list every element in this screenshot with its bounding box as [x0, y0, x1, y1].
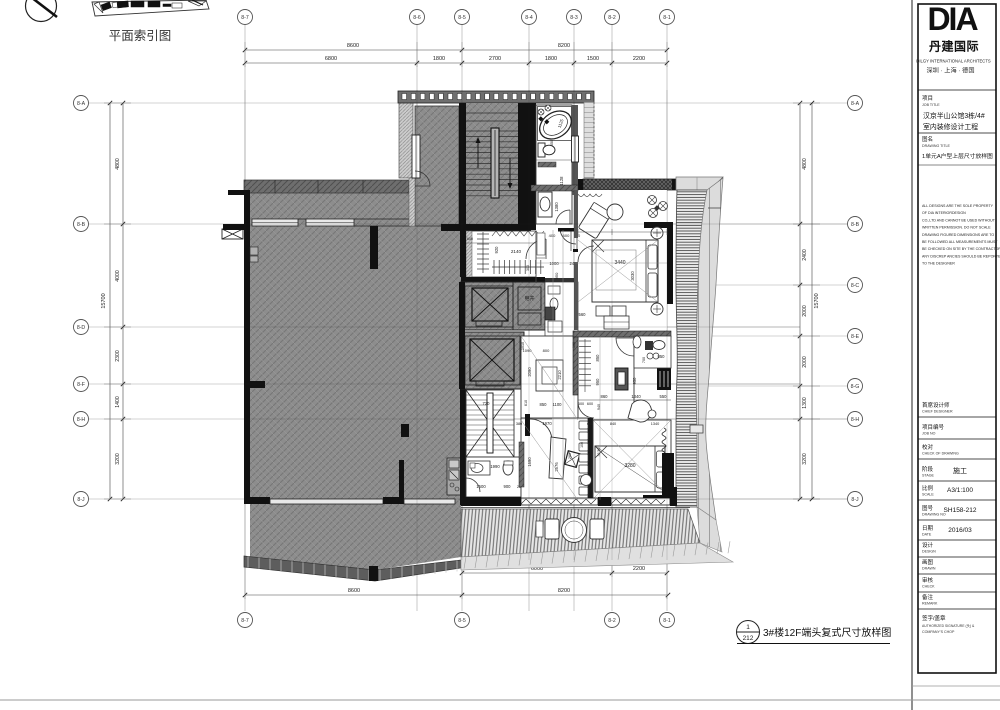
svg-text:首席设计师: 首席设计师: [922, 401, 950, 409]
svg-text:1970: 1970: [542, 421, 552, 426]
svg-text:ANY DISCREP ANCIES SHOULD BE R: ANY DISCREP ANCIES SHOULD BE REPORTED: [922, 254, 1000, 258]
svg-text:DESIGN: DESIGN: [922, 550, 936, 554]
svg-text:920: 920: [494, 246, 499, 254]
svg-text:汉京半山公馆3栋/4#: 汉京半山公馆3栋/4#: [923, 111, 985, 120]
svg-text:3200: 3200: [802, 453, 808, 465]
svg-text:DILGY INTERNATIONAL ARCHITEC: DILGY INTERNATIONAL ARCHITECTS: [916, 59, 991, 64]
svg-text:BE CHECKED ON SITE BY THE CONT: BE CHECKED ON SITE BY THE CONTRACTOR: [922, 247, 1000, 251]
svg-text:2700: 2700: [489, 56, 501, 62]
svg-text:1: 1: [746, 624, 750, 631]
svg-text:130: 130: [589, 467, 593, 473]
svg-text:SH158-212: SH158-212: [944, 507, 977, 514]
svg-text:8-A: 8-A: [851, 101, 860, 107]
svg-text:4800: 4800: [115, 158, 121, 170]
svg-text:STAGE: STAGE: [922, 474, 935, 478]
svg-text:15700: 15700: [814, 293, 820, 308]
svg-text:项目: 项目: [922, 95, 933, 102]
svg-text:SCALE: SCALE: [922, 493, 934, 497]
svg-text:700: 700: [642, 357, 646, 363]
svg-text:900: 900: [504, 484, 512, 489]
svg-text:图名: 图名: [922, 135, 933, 143]
svg-text:950: 950: [595, 378, 600, 386]
svg-text:300: 300: [526, 265, 530, 271]
svg-text:8-D: 8-D: [77, 325, 86, 331]
svg-text:COMPANY'S CHOP: COMPANY'S CHOP: [922, 630, 955, 634]
svg-text:4800: 4800: [802, 158, 808, 170]
svg-text:15700: 15700: [101, 293, 107, 308]
svg-text:AUTHORIZED SIGNATURE (头) &: AUTHORIZED SIGNATURE (头) &: [922, 623, 975, 628]
svg-text:1500: 1500: [587, 56, 599, 62]
svg-text:1300: 1300: [802, 397, 808, 409]
svg-text:DATE: DATE: [922, 533, 932, 537]
svg-text:2016/03: 2016/03: [948, 527, 972, 534]
svg-text:8-7: 8-7: [241, 15, 249, 21]
svg-text:8-2: 8-2: [608, 618, 616, 624]
svg-text:1010: 1010: [521, 342, 525, 350]
svg-text:8-H: 8-H: [851, 417, 860, 423]
svg-text:校对: 校对: [922, 443, 934, 451]
svg-text:8-1: 8-1: [663, 15, 671, 21]
svg-text:8600: 8600: [348, 588, 360, 594]
svg-text:8-5: 8-5: [458, 618, 466, 624]
svg-text:2140: 2140: [511, 249, 522, 254]
svg-text:8-2: 8-2: [608, 15, 616, 21]
svg-text:BE FOLLOWED ALL MEASUREMENTS: BE FOLLOWED ALL MEASUREMENTS MUST: [922, 240, 998, 244]
svg-text:丹建国际: 丹建国际: [929, 39, 979, 54]
svg-text:REMARK: REMARK: [922, 602, 938, 606]
svg-text:8-5: 8-5: [458, 15, 466, 21]
svg-text:2200: 2200: [633, 56, 645, 62]
svg-text:8-C: 8-C: [851, 283, 860, 289]
svg-text:720: 720: [483, 401, 491, 406]
svg-text:深圳 · 上海 · 德国: 深圳 · 上海 · 德国: [926, 67, 974, 75]
svg-text:DRAWING TITLE: DRAWING TITLE: [922, 144, 951, 148]
svg-text:600: 600: [467, 237, 473, 241]
svg-text:2000: 2000: [802, 356, 808, 368]
svg-text:DRAWN: DRAWN: [922, 567, 936, 571]
svg-text:JOB NO: JOB NO: [922, 432, 936, 436]
svg-text:850: 850: [658, 354, 666, 359]
svg-text:380: 380: [516, 422, 522, 426]
svg-text:6800: 6800: [325, 56, 337, 62]
svg-text:A3/1:100: A3/1:100: [947, 487, 973, 494]
svg-text:100: 100: [580, 442, 584, 448]
svg-text:1340: 1340: [651, 422, 659, 426]
svg-text:8-7: 8-7: [241, 618, 249, 624]
svg-text:550: 550: [660, 394, 668, 399]
svg-text:8200: 8200: [558, 43, 570, 49]
svg-text:DRAWING FIGURED DIMENSIONS: DRAWING FIGURED DIMENSIONS ARE TO: [922, 233, 994, 237]
svg-text:2400: 2400: [802, 249, 808, 261]
svg-text:1800: 1800: [433, 56, 445, 62]
svg-text:2090: 2090: [527, 367, 532, 377]
svg-text:690: 690: [587, 422, 593, 426]
svg-text:2300: 2300: [115, 350, 121, 362]
svg-text:1100: 1100: [552, 402, 562, 407]
svg-text:1128: 1128: [559, 176, 564, 186]
svg-text:备注: 备注: [922, 593, 934, 601]
svg-text:2200: 2200: [633, 566, 645, 572]
svg-text:TO THE DESIGNER: TO THE DESIGNER: [922, 262, 955, 266]
svg-text:950: 950: [632, 377, 637, 385]
svg-text:ALL DESIGNS ARE THE SOLE: ALL DESIGNS ARE THE SOLE PROPERTY: [922, 204, 994, 208]
svg-text:8-G: 8-G: [851, 384, 860, 390]
svg-text:8-4: 8-4: [525, 15, 533, 21]
svg-text:CO.,LTD AND CANNOT BE USED: CO.,LTD AND CANNOT BE USED WITHOUT: [922, 218, 996, 222]
svg-text:600: 600: [578, 402, 584, 406]
svg-text:DRAWING NO: DRAWING NO: [922, 513, 946, 517]
svg-text:4000: 4000: [115, 270, 121, 282]
svg-text:2210: 2210: [557, 370, 562, 380]
svg-text:2000: 2000: [802, 305, 808, 317]
svg-text:电井: 电井: [524, 295, 534, 302]
svg-text:CHIEF DESIGNER: CHIEF DESIGNER: [922, 410, 953, 414]
svg-text:DIA: DIA: [927, 1, 978, 37]
svg-text:850: 850: [595, 354, 600, 362]
svg-text:WRITTEN PERMISSION. DO NOT: WRITTEN PERMISSION. DO NOT SCALE: [922, 226, 991, 230]
svg-text:施工: 施工: [953, 466, 967, 475]
svg-text:阶段: 阶段: [922, 465, 934, 473]
svg-text:1340: 1340: [631, 394, 641, 399]
svg-text:400: 400: [549, 233, 556, 238]
svg-text:JOB TITLE: JOB TITLE: [922, 103, 940, 107]
svg-text:平面索引图: 平面索引图: [109, 29, 172, 43]
svg-text:8200: 8200: [558, 588, 570, 594]
svg-text:审核: 审核: [922, 576, 934, 584]
svg-text:860: 860: [601, 394, 609, 399]
svg-text:560: 560: [579, 312, 587, 317]
svg-text:项目编号: 项目编号: [922, 423, 945, 431]
svg-text:设计: 设计: [922, 541, 934, 549]
svg-text:950: 950: [554, 272, 559, 279]
svg-text:日期: 日期: [922, 525, 934, 532]
svg-text:1400: 1400: [115, 396, 121, 408]
svg-text:1000: 1000: [549, 261, 559, 266]
svg-text:3280: 3280: [624, 463, 635, 469]
svg-text:600: 600: [563, 233, 570, 238]
svg-text:600: 600: [587, 402, 593, 406]
svg-text:OF DIA INTERIORDESIGN: OF DIA INTERIORDESIGN: [922, 211, 966, 215]
svg-text:610: 610: [524, 400, 528, 406]
svg-text:画图: 画图: [922, 558, 934, 566]
svg-text:840: 840: [610, 422, 616, 426]
svg-text:1690: 1690: [527, 457, 532, 467]
svg-text:280: 280: [568, 453, 572, 459]
svg-text:3130: 3130: [596, 447, 601, 457]
svg-text:1单元A户型上层尺寸放样图: 1单元A户型上层尺寸放样图: [922, 152, 993, 160]
svg-text:8-3: 8-3: [570, 15, 578, 21]
svg-text:3#楼12F端头复式尺寸放样图: 3#楼12F端头复式尺寸放样图: [763, 626, 891, 639]
svg-text:8-E: 8-E: [851, 334, 860, 340]
svg-text:1380: 1380: [554, 202, 559, 212]
svg-text:3200: 3200: [115, 453, 121, 465]
svg-text:3030: 3030: [630, 271, 635, 281]
svg-text:8-H: 8-H: [77, 417, 86, 423]
svg-text:8-J: 8-J: [77, 497, 85, 503]
svg-text:1990: 1990: [490, 464, 500, 469]
svg-text:8-6: 8-6: [413, 15, 421, 21]
svg-text:212: 212: [743, 635, 754, 642]
svg-text:CHECK OF DRAWING: CHECK OF DRAWING: [922, 452, 959, 456]
svg-text:940: 940: [597, 404, 601, 410]
svg-text:比例: 比例: [922, 484, 934, 492]
svg-text:8-B: 8-B: [77, 222, 86, 228]
svg-text:800: 800: [543, 348, 550, 353]
svg-text:8600: 8600: [347, 43, 359, 49]
svg-text:8-F: 8-F: [77, 382, 85, 388]
svg-text:图号: 图号: [922, 504, 934, 512]
svg-text:室内装修设计工程: 室内装修设计工程: [923, 122, 978, 131]
svg-text:CHECK: CHECK: [922, 585, 935, 589]
svg-text:850: 850: [540, 402, 548, 407]
svg-text:8-B: 8-B: [851, 222, 860, 228]
svg-text:8-J: 8-J: [851, 497, 859, 503]
svg-text:8-1: 8-1: [663, 618, 671, 624]
svg-text:签字/盖章: 签字/盖章: [922, 614, 946, 622]
svg-text:1800: 1800: [545, 56, 557, 62]
svg-text:8-A: 8-A: [77, 101, 86, 107]
